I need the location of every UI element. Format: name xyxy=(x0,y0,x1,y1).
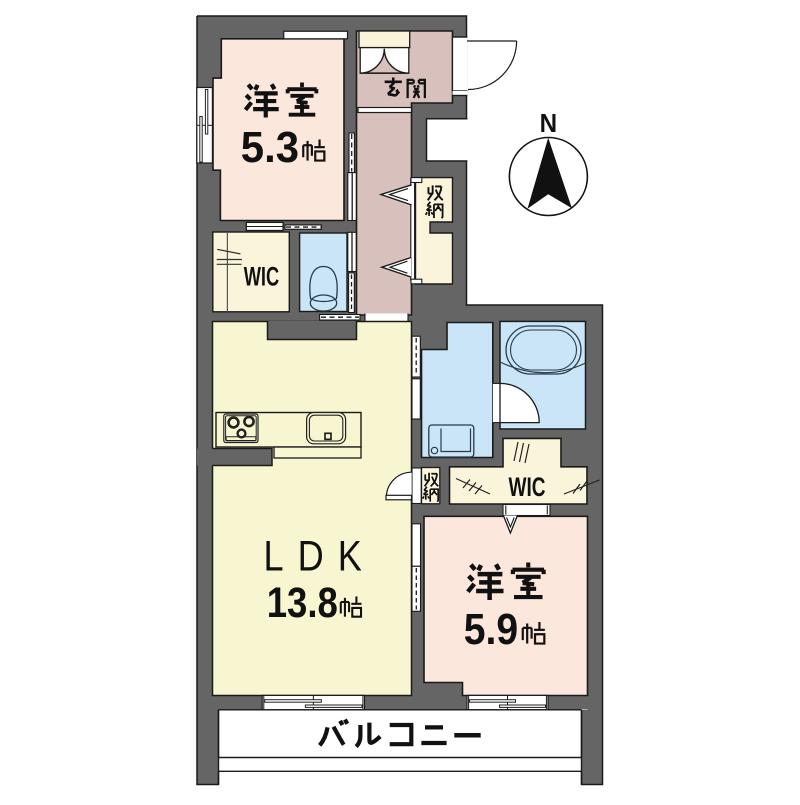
svg-text:5.9: 5.9 xyxy=(464,605,518,654)
svg-text:N: N xyxy=(540,108,558,138)
svg-text:13.8: 13.8 xyxy=(267,580,338,627)
svg-text:WIC: WIC xyxy=(244,261,280,291)
svg-text:LDK: LDK xyxy=(264,533,376,580)
svg-text:WIC: WIC xyxy=(509,472,546,502)
svg-text:5.3: 5.3 xyxy=(241,123,299,172)
